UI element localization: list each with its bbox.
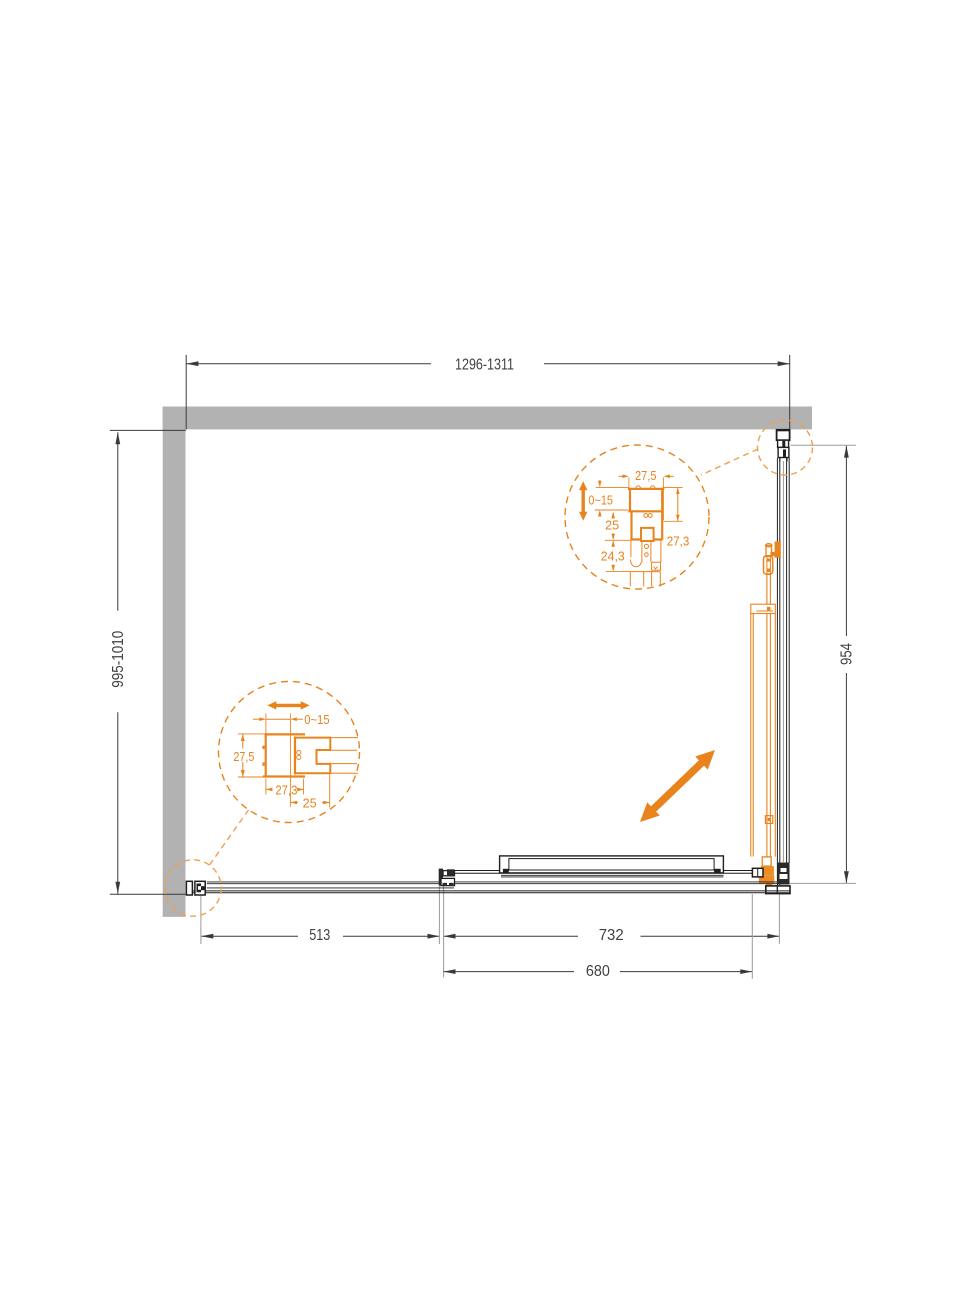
svg-text:0~15: 0~15: [304, 713, 329, 727]
svg-text:27,5: 27,5: [233, 750, 254, 764]
svg-text:732: 732: [599, 927, 624, 944]
svg-text:27,3: 27,3: [667, 535, 690, 549]
svg-text:25: 25: [303, 797, 317, 811]
svg-text:27,3: 27,3: [275, 783, 297, 797]
svg-text:680: 680: [586, 963, 610, 980]
svg-text:954: 954: [838, 643, 855, 665]
svg-text:1296-1311: 1296-1311: [455, 357, 514, 374]
svg-text:513: 513: [309, 927, 330, 944]
svg-text:27,5: 27,5: [635, 469, 657, 483]
svg-text:0~15: 0~15: [588, 494, 613, 508]
svg-text:995-1010: 995-1010: [110, 631, 127, 688]
svg-text:25: 25: [605, 518, 619, 532]
svg-text:24,3: 24,3: [601, 550, 625, 564]
